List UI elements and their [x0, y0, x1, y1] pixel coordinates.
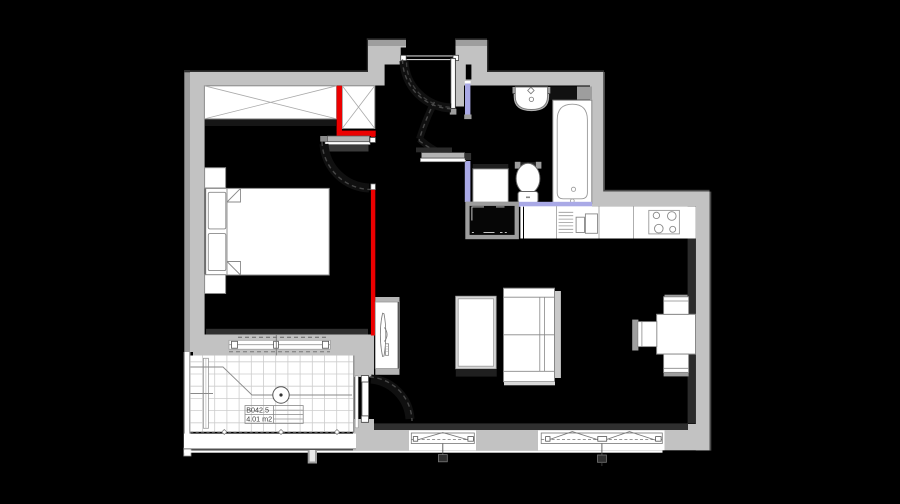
svg-text:B042.5: B042.5	[246, 406, 269, 415]
svg-text:4.01 m2: 4.01 m2	[246, 415, 272, 424]
